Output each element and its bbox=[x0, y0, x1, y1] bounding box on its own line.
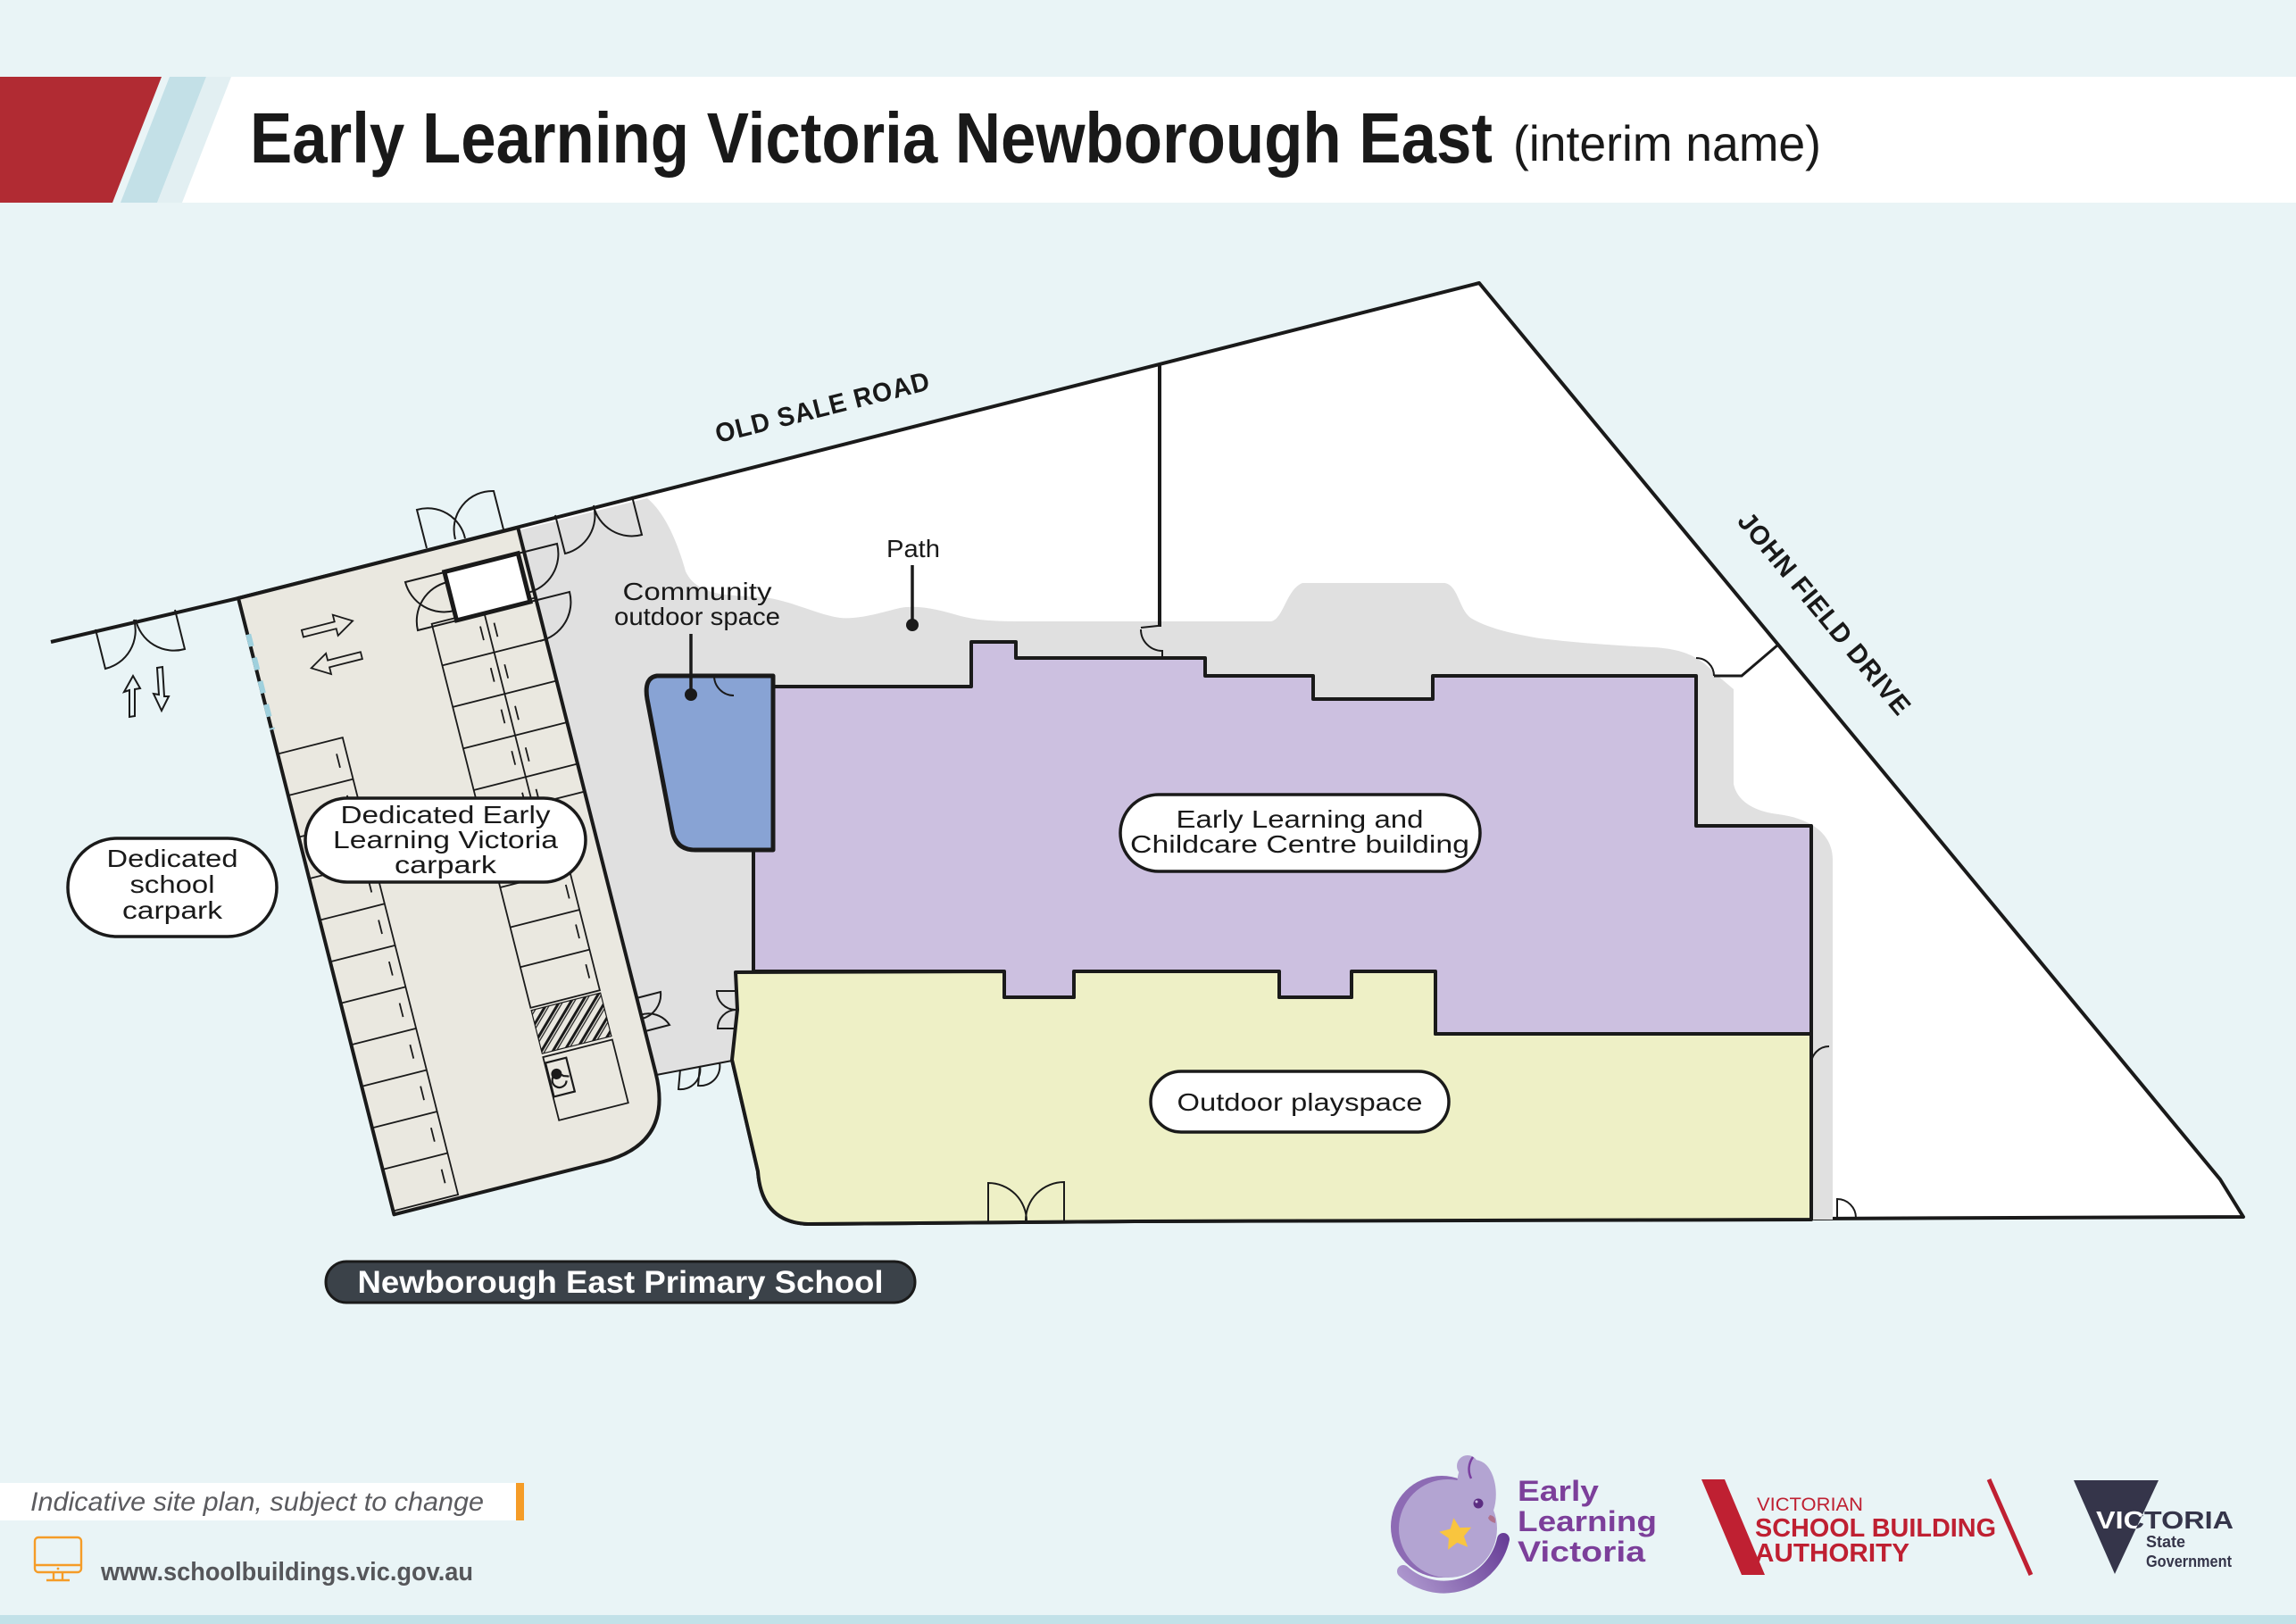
svg-text:Dedicated Early: Dedicated Early bbox=[341, 801, 551, 829]
svg-text:outdoor space: outdoor space bbox=[614, 603, 780, 630]
svg-text:(interim name): (interim name) bbox=[1513, 115, 1821, 171]
svg-text:Newborough East Primary School: Newborough East Primary School bbox=[358, 1265, 884, 1300]
svg-text:carpark: carpark bbox=[122, 896, 223, 924]
svg-text:Outdoor playspace: Outdoor playspace bbox=[1177, 1088, 1423, 1116]
svg-text:Government: Government bbox=[2146, 1553, 2232, 1570]
svg-text:Learning: Learning bbox=[1518, 1505, 1657, 1537]
svg-text:AUTHORITY: AUTHORITY bbox=[1755, 1539, 1909, 1568]
svg-text:www.schoolbuildings.vic.gov.au: www.schoolbuildings.vic.gov.au bbox=[100, 1558, 473, 1587]
svg-text:Early Learning Victoria Newbor: Early Learning Victoria Newborough East bbox=[250, 98, 1493, 178]
svg-text:Early Learning and: Early Learning and bbox=[1177, 805, 1424, 833]
svg-text:Indicative site plan, subject: Indicative site plan, subject to change bbox=[30, 1487, 484, 1517]
svg-text:Childcare Centre building: Childcare Centre building bbox=[1130, 830, 1469, 858]
svg-text:school: school bbox=[130, 870, 215, 898]
svg-text:VICTORIAN: VICTORIAN bbox=[1757, 1495, 1863, 1515]
svg-text:Community: Community bbox=[623, 578, 772, 605]
svg-text:Dedicated: Dedicated bbox=[107, 845, 238, 872]
svg-text:Victoria: Victoria bbox=[1518, 1536, 1645, 1568]
svg-text:carpark: carpark bbox=[395, 851, 497, 879]
svg-text:State: State bbox=[2146, 1533, 2185, 1551]
svg-text:Learning Victoria: Learning Victoria bbox=[333, 826, 559, 854]
svg-text:Early: Early bbox=[1518, 1475, 1599, 1507]
svg-text:Path: Path bbox=[886, 535, 940, 562]
